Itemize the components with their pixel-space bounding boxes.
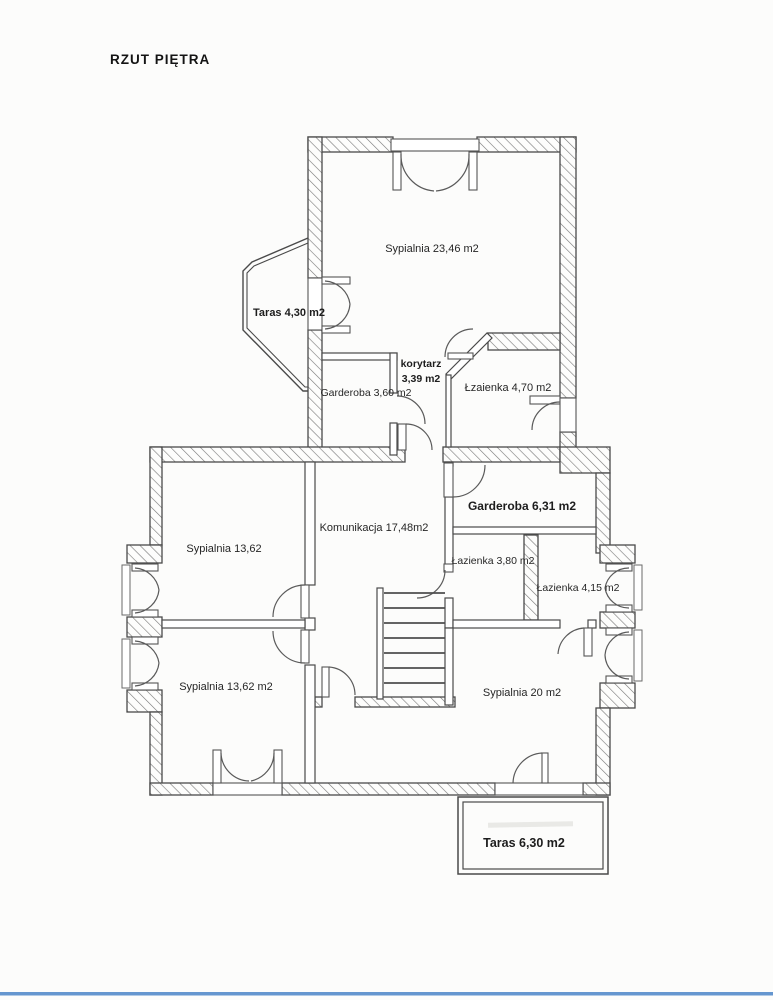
room-label-korytarz-area: 3,39 m2 — [402, 373, 441, 385]
scanned-floor-plan-page: RZUT PIĘTRA — [0, 0, 773, 1000]
room-label-taras-left: Taras 4,30 m2 — [253, 307, 325, 319]
room-label-garderoba-small: Garderoba 3,60 m2 — [320, 387, 411, 399]
room-label-lazienka-top: Łzaienka 4,70 m2 — [465, 382, 552, 394]
room-label-sypialnia-bottom: Sypialnia 13,62 m2 — [179, 681, 273, 693]
floor-plan-drawing: RZUT PIĘTRA — [0, 0, 773, 1000]
room-label-komunikacja: Komunikacja 17,48m2 — [320, 522, 429, 534]
room-label-sypialnia-20: Sypialnia 20 m2 — [483, 687, 561, 699]
page-title: RZUT PIĘTRA — [110, 52, 210, 67]
room-label-korytarz-name: korytarz — [401, 358, 442, 370]
room-label-sypialnia-top: Sypialnia 23,46 m2 — [385, 243, 479, 255]
room-label-lazienka-380: Łazienka 3,80 m2 — [452, 555, 535, 567]
room-label-lazienka-415: Łazienka 4,15 m2 — [537, 582, 620, 594]
room-label-sypialnia-mid: Sypialnia 13,62 — [186, 543, 261, 555]
room-label-garderoba-big: Garderoba 6,31 m2 — [468, 499, 576, 513]
scan-edge-line — [0, 992, 773, 996]
room-label-taras-bottom: Taras 6,30 m2 — [483, 836, 565, 850]
